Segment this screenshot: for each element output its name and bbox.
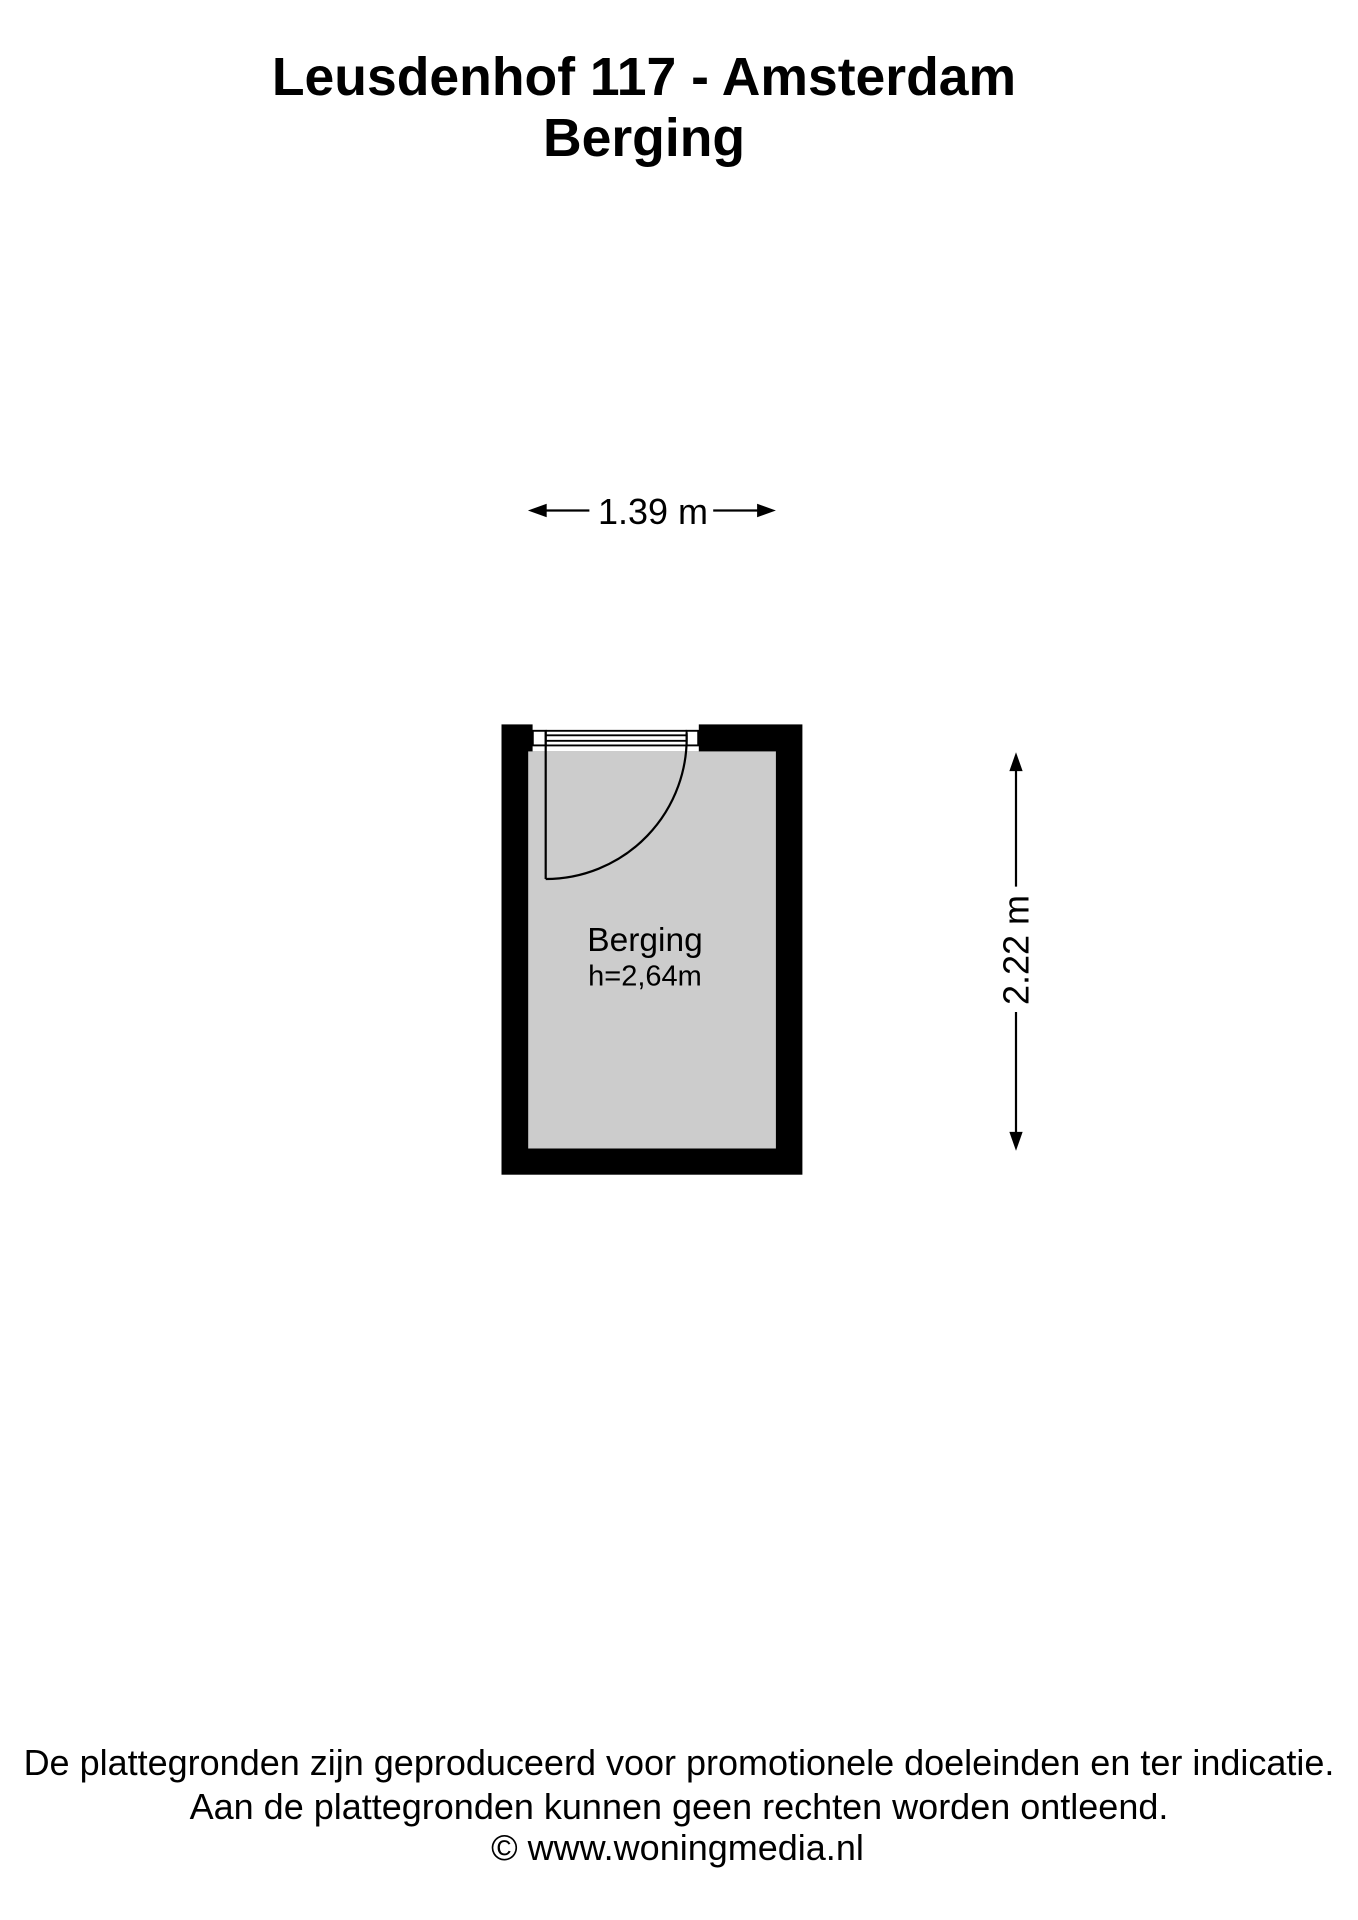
svg-text:h=2,64m: h=2,64m [588,961,702,993]
svg-text:Berging: Berging [543,109,745,168]
svg-text:Berging: Berging [587,922,702,959]
svg-text:Aan de plattegronden kunnen ge: Aan de plattegronden kunnen geen rechten… [190,1786,1169,1827]
svg-text:© www.woningmedia.nl: © www.woningmedia.nl [491,1827,864,1868]
svg-text:Leusdenhof 117 - Amsterdam: Leusdenhof 117 - Amsterdam [272,48,1016,107]
svg-text:1.39 m: 1.39 m [598,491,708,532]
svg-text:2.22 m: 2.22 m [996,895,1037,1005]
svg-text:De plattegronden zijn geproduc: De plattegronden zijn geproduceerd voor … [24,1742,1335,1783]
